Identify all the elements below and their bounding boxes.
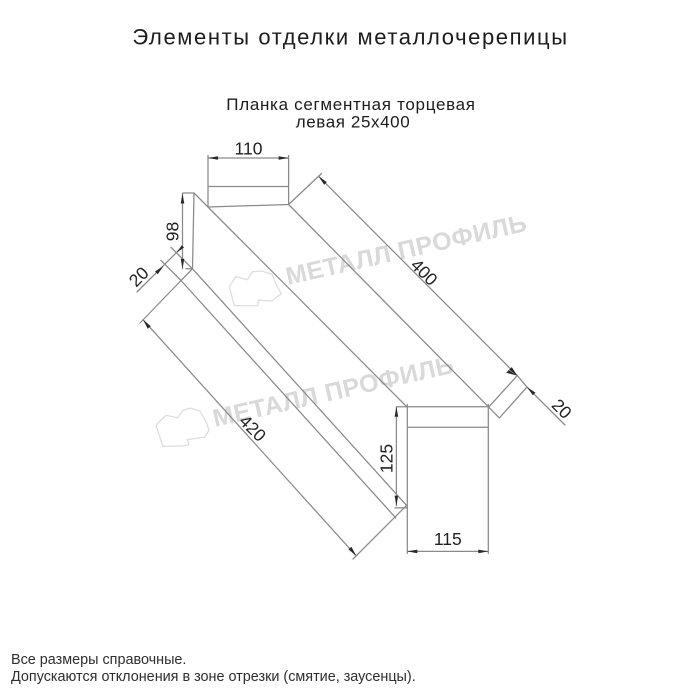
svg-text:98: 98 (163, 222, 183, 241)
svg-text:Планка сегментная торцевая: Планка сегментная торцевая (226, 95, 475, 114)
svg-text:Допускаются отклонения в зоне: Допускаются отклонения в зоне отрезки (с… (11, 669, 416, 685)
svg-text:Элементы отделки металлочерепи: Элементы отделки металлочерепицы (132, 25, 568, 50)
svg-text:110: 110 (235, 139, 263, 159)
svg-text:115: 115 (434, 529, 462, 549)
svg-text:левая 25х400: левая 25х400 (296, 113, 411, 132)
svg-text:Все размеры справочные.: Все размеры справочные. (11, 652, 186, 668)
svg-text:125: 125 (377, 444, 397, 473)
